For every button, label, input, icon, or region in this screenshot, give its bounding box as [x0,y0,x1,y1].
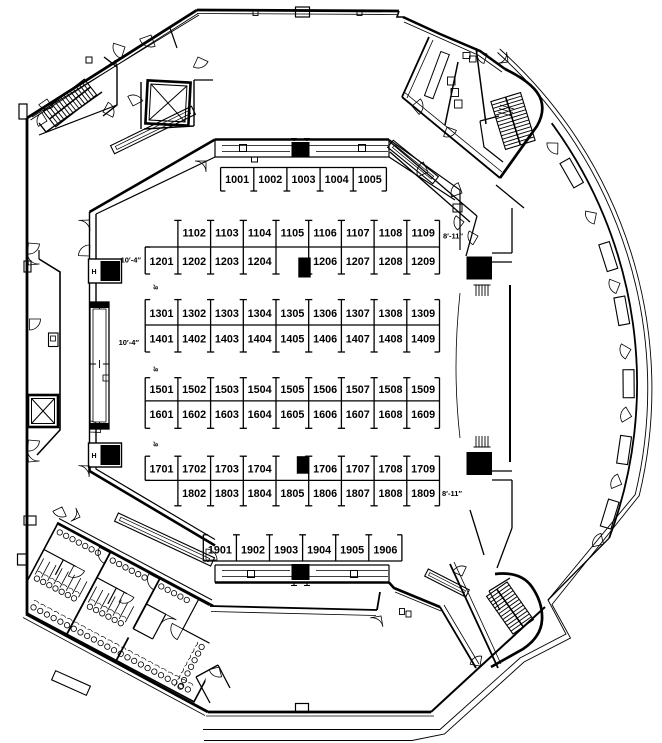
svg-text:1106: 1106 [313,227,336,239]
svg-text:1207: 1207 [346,256,370,268]
svg-text:1906: 1906 [373,545,397,557]
svg-text:1201: 1201 [149,256,173,268]
svg-text:10′-4″: 10′-4″ [119,338,140,347]
svg-text:1402: 1402 [182,333,206,345]
svg-text:1602: 1602 [182,409,206,421]
svg-text:1608: 1608 [378,409,402,421]
svg-text:1202: 1202 [182,256,206,268]
svg-text:1508: 1508 [378,384,402,396]
svg-text:8′: 8′ [153,284,160,290]
svg-text:1303: 1303 [215,308,239,320]
svg-text:1701: 1701 [149,464,173,476]
svg-text:1509: 1509 [411,384,435,396]
svg-text:10′-4″: 10′-4″ [121,256,142,265]
svg-text:1601: 1601 [149,409,173,421]
svg-text:1803: 1803 [215,488,239,500]
svg-text:1301: 1301 [149,308,173,320]
svg-text:1305: 1305 [280,308,304,320]
svg-text:1603: 1603 [215,409,239,421]
svg-text:1605: 1605 [280,409,304,421]
svg-text:1704: 1704 [248,464,272,476]
svg-text:1802: 1802 [182,488,206,500]
svg-text:1209: 1209 [411,256,435,268]
svg-text:1306: 1306 [313,308,337,320]
svg-text:1307: 1307 [346,308,370,320]
svg-text:1002: 1002 [258,174,282,186]
svg-text:1708: 1708 [378,464,402,476]
svg-text:1702: 1702 [182,464,206,476]
svg-text:1401: 1401 [149,333,173,345]
svg-text:1406: 1406 [313,333,337,345]
svg-text:1703: 1703 [215,464,239,476]
svg-text:1104: 1104 [248,227,271,239]
svg-text:1507: 1507 [346,384,370,396]
svg-text:1105: 1105 [281,227,304,239]
svg-text:1502: 1502 [182,384,206,396]
svg-text:1807: 1807 [346,488,370,500]
svg-text:1003: 1003 [291,174,315,186]
svg-text:1506: 1506 [313,384,337,396]
svg-text:1107: 1107 [346,227,369,239]
svg-text:1001: 1001 [225,174,249,186]
svg-text:1901: 1901 [208,545,232,557]
svg-text:8′-11″: 8′-11″ [442,489,462,498]
svg-text:1404: 1404 [248,333,272,345]
svg-text:1403: 1403 [215,333,239,345]
svg-text:1206: 1206 [313,256,337,268]
svg-text:8′: 8′ [153,441,160,447]
svg-text:1501: 1501 [149,384,173,396]
svg-text:1304: 1304 [248,308,272,320]
svg-text:1806: 1806 [313,488,337,500]
svg-text:1904: 1904 [307,545,331,557]
svg-text:1409: 1409 [411,333,435,345]
svg-text:H: H [91,453,96,460]
svg-text:1405: 1405 [280,333,304,345]
svg-text:1309: 1309 [411,308,435,320]
svg-text:1109: 1109 [411,227,434,239]
svg-text:1208: 1208 [378,256,402,268]
svg-text:1604: 1604 [248,409,272,421]
svg-text:1609: 1609 [411,409,435,421]
svg-text:1503: 1503 [215,384,239,396]
svg-text:1709: 1709 [411,464,435,476]
svg-text:1607: 1607 [346,409,370,421]
svg-text:1005: 1005 [358,174,382,186]
svg-text:1809: 1809 [411,488,435,500]
svg-text:8′-11″: 8′-11″ [443,232,463,241]
svg-text:1902: 1902 [241,545,265,557]
svg-text:1302: 1302 [182,308,206,320]
svg-text:1903: 1903 [274,545,298,557]
svg-text:1204: 1204 [248,256,272,268]
svg-text:1706: 1706 [313,464,337,476]
svg-text:1408: 1408 [378,333,402,345]
svg-text:8′: 8′ [153,366,160,372]
svg-text:1505: 1505 [280,384,304,396]
svg-text:1905: 1905 [340,545,364,557]
svg-text:1308: 1308 [378,308,402,320]
svg-text:1407: 1407 [346,333,370,345]
svg-text:1004: 1004 [325,174,349,186]
svg-text:1808: 1808 [378,488,402,500]
svg-text:1102: 1102 [182,227,205,239]
svg-text:1203: 1203 [215,256,239,268]
svg-text:H: H [91,269,96,276]
svg-text:1707: 1707 [346,464,370,476]
svg-text:1504: 1504 [248,384,272,396]
svg-text:1804: 1804 [248,488,272,500]
svg-text:1606: 1606 [313,409,337,421]
svg-text:1108: 1108 [379,227,402,239]
svg-text:1103: 1103 [215,227,238,239]
svg-text:1805: 1805 [280,488,304,500]
